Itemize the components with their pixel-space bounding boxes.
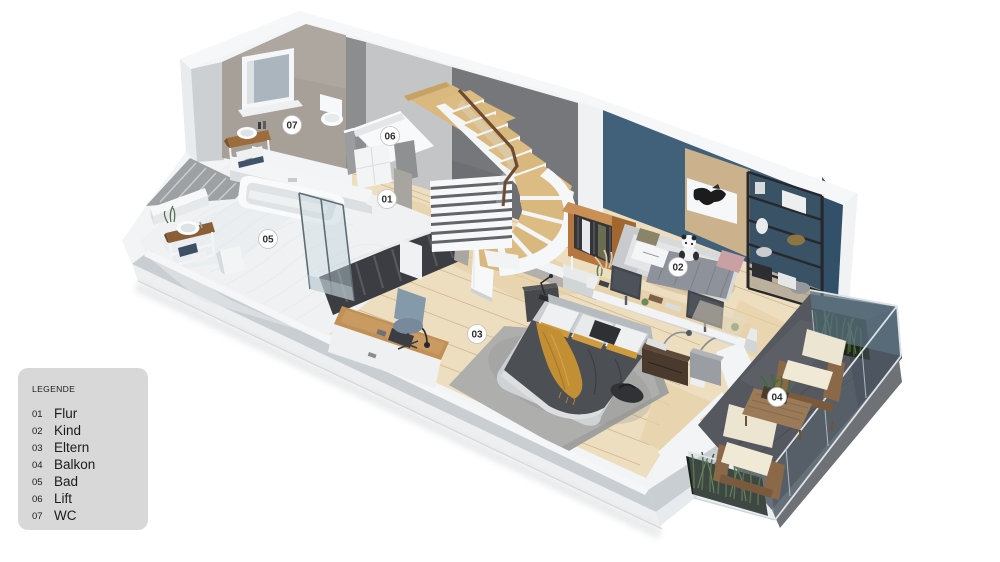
svg-text:03: 03 bbox=[32, 443, 43, 454]
svg-text:Balkon: Balkon bbox=[54, 457, 95, 472]
svg-text:Flur: Flur bbox=[54, 406, 78, 421]
svg-text:05: 05 bbox=[262, 235, 274, 246]
svg-text:07: 07 bbox=[32, 511, 43, 522]
svg-text:Bad: Bad bbox=[54, 474, 78, 489]
svg-text:02: 02 bbox=[32, 426, 43, 437]
svg-text:04: 04 bbox=[32, 460, 43, 471]
svg-text:Kind: Kind bbox=[54, 423, 81, 438]
svg-text:06: 06 bbox=[384, 132, 396, 143]
svg-text:01: 01 bbox=[32, 409, 43, 420]
svg-text:04: 04 bbox=[771, 393, 783, 404]
svg-text:02: 02 bbox=[672, 263, 684, 274]
svg-text:03: 03 bbox=[471, 330, 483, 341]
svg-text:WC: WC bbox=[54, 508, 77, 523]
svg-text:07: 07 bbox=[286, 121, 298, 132]
svg-text:05: 05 bbox=[32, 477, 43, 488]
svg-text:06: 06 bbox=[32, 494, 43, 505]
svg-text:Eltern: Eltern bbox=[54, 440, 89, 455]
svg-text:LEGENDE: LEGENDE bbox=[32, 384, 75, 394]
svg-text:Lift: Lift bbox=[54, 491, 72, 506]
svg-text:01: 01 bbox=[381, 195, 393, 206]
